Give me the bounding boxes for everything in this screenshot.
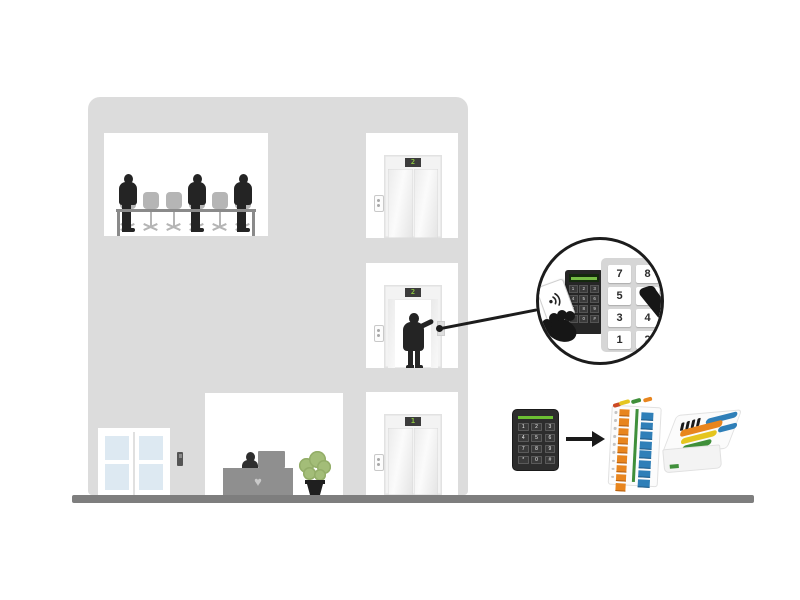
elevator-door-frame: 2 (384, 155, 442, 238)
meeting-table (116, 209, 256, 212)
callout-leader-dot (436, 325, 443, 332)
elevator-middle-floor: 2 (366, 263, 458, 368)
seated-person-silhouette (186, 174, 208, 236)
floor-button: 1 (608, 331, 631, 349)
elevator-doors-closed (388, 428, 438, 495)
floor-button: 5 (608, 287, 631, 305)
ground-line (72, 495, 754, 503)
seated-person-silhouette (117, 174, 139, 236)
potted-plant (297, 448, 333, 495)
meeting-room (104, 133, 268, 236)
reader-display (569, 274, 599, 282)
door-glass-panel (139, 464, 163, 490)
computer-monitor (258, 451, 285, 468)
access-keypad-device: 123 456 789 *0# (512, 409, 559, 471)
floor-button: 7 (608, 265, 631, 283)
entrance-double-door (98, 428, 170, 495)
green-label (670, 464, 679, 468)
hand-holding-card-icon (539, 306, 583, 346)
door-glass-panel (105, 464, 129, 490)
empty-office-chair (209, 174, 231, 236)
wire-green (631, 398, 642, 404)
elevator-door-frame: 1 (384, 414, 442, 495)
floor-button: 3 (608, 309, 631, 327)
elevator-floor-display: 2 (405, 288, 421, 297)
flow-arrow (566, 437, 592, 441)
heart-icon: ♥ (254, 475, 262, 488)
elevator-floor-display: 1 (405, 417, 421, 426)
keypad-keys: 123 456 789 *0# (518, 423, 555, 464)
keypad-status-led-bar (518, 416, 553, 419)
elevator-call-button-panel (374, 325, 384, 342)
elevator-top-floor: 2 (366, 133, 458, 238)
floor-button: 8 (636, 265, 659, 283)
elevator-ground-floor: 1 (366, 392, 458, 495)
reception-desk: ♥ (223, 468, 293, 495)
controller-front-face (662, 444, 722, 473)
empty-office-chair (140, 174, 162, 236)
flow-arrow-head (592, 431, 605, 447)
elevator-call-button-panel (374, 454, 384, 471)
wall-card-reader (177, 452, 183, 466)
door-controller-box (659, 410, 742, 481)
illustration-canvas: 2 2 1 (0, 0, 800, 600)
reception-room: ♥ (205, 393, 343, 495)
pointing-hand-icon (635, 286, 664, 356)
elevator-passenger-silhouette (400, 313, 428, 368)
io-relay-module (608, 395, 663, 487)
seated-person-silhouette (232, 174, 254, 236)
door-glass-panel (105, 436, 129, 460)
elevator-call-button-panel (374, 195, 384, 212)
callout-circle: 123 456 789 *0# 7 (536, 237, 664, 365)
door-glass-panel (139, 436, 163, 460)
elevator-doors-closed (388, 169, 438, 238)
elevator-floor-display: 2 (405, 158, 421, 167)
empty-office-chair (163, 174, 185, 236)
wire-orange (643, 397, 653, 403)
